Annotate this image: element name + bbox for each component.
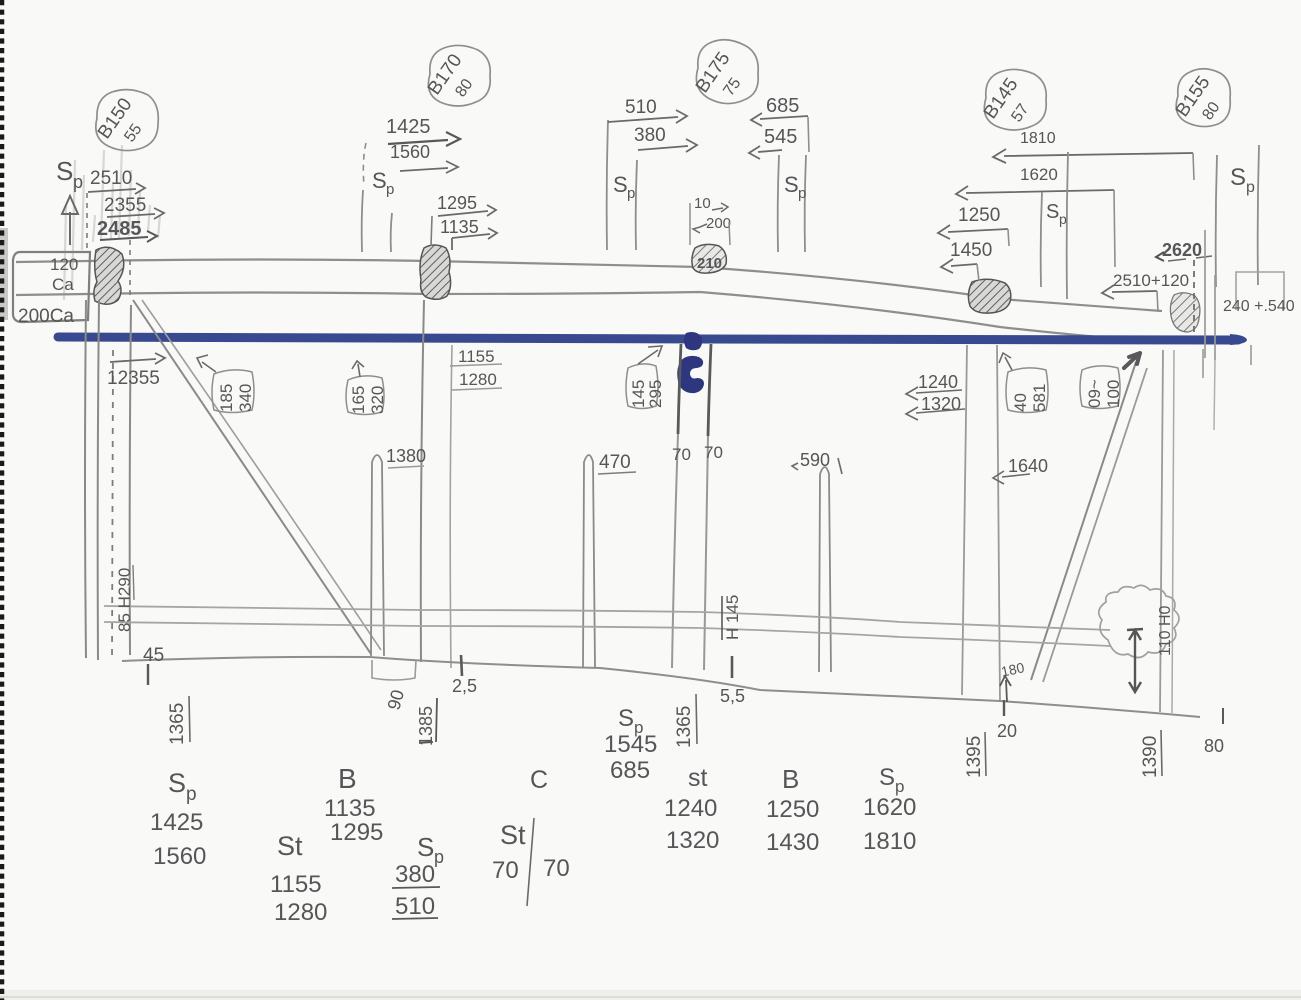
svg-text:2510: 2510 xyxy=(90,168,132,189)
svg-text:1385: 1385 xyxy=(416,706,436,746)
svg-text:1425: 1425 xyxy=(386,116,431,138)
svg-text:H 145: H 145 xyxy=(723,595,742,640)
svg-text:545: 545 xyxy=(764,126,797,148)
svg-text:100: 100 xyxy=(1104,380,1123,408)
svg-text:2620: 2620 xyxy=(1162,240,1202,260)
svg-text:1250: 1250 xyxy=(958,205,1000,226)
svg-text:70: 70 xyxy=(543,855,570,882)
svg-text:70: 70 xyxy=(704,443,723,462)
svg-text:5,5: 5,5 xyxy=(720,686,745,706)
svg-text:St: St xyxy=(277,831,303,861)
svg-text:240 +.540: 240 +.540 xyxy=(1223,298,1295,315)
svg-text:C: C xyxy=(530,766,548,794)
svg-text:1155: 1155 xyxy=(458,347,495,366)
svg-text:2510+120: 2510+120 xyxy=(1113,271,1189,290)
svg-text:2,5: 2,5 xyxy=(452,676,477,696)
svg-text:470: 470 xyxy=(599,452,631,473)
svg-text:S: S xyxy=(168,768,186,798)
svg-text:1250: 1250 xyxy=(766,796,819,823)
svg-text:210: 210 xyxy=(697,255,722,272)
svg-text:S: S xyxy=(372,168,387,193)
svg-text:581: 581 xyxy=(1030,384,1049,412)
svg-text:p: p xyxy=(1059,211,1067,227)
svg-text:12355: 12355 xyxy=(107,368,160,389)
svg-text:1620: 1620 xyxy=(1020,165,1058,184)
svg-text:1380: 1380 xyxy=(386,446,426,466)
svg-text:10: 10 xyxy=(694,195,711,212)
svg-text:510: 510 xyxy=(625,97,657,118)
svg-text:1365: 1365 xyxy=(167,703,188,745)
svg-text:p: p xyxy=(798,185,806,202)
svg-text:p: p xyxy=(386,181,394,198)
svg-text:20: 20 xyxy=(997,721,1017,741)
svg-text:1450: 1450 xyxy=(950,240,992,261)
svg-text:295: 295 xyxy=(646,380,665,408)
svg-text:1365: 1365 xyxy=(674,706,695,748)
svg-text:S: S xyxy=(417,832,434,862)
svg-text:1320: 1320 xyxy=(666,827,719,854)
svg-text:st: st xyxy=(688,764,708,792)
svg-text:B: B xyxy=(782,764,799,794)
svg-text:380: 380 xyxy=(634,125,666,146)
svg-text:1810: 1810 xyxy=(1020,130,1056,147)
svg-text:S: S xyxy=(879,764,895,791)
svg-text:1620: 1620 xyxy=(863,794,916,821)
svg-text:1240: 1240 xyxy=(664,795,717,822)
svg-text:510: 510 xyxy=(395,893,435,920)
svg-text:Ca: Ca xyxy=(52,275,74,294)
svg-text:1295: 1295 xyxy=(437,193,477,213)
svg-text:85 H290: 85 H290 xyxy=(115,568,134,632)
svg-text:1430: 1430 xyxy=(766,829,819,856)
svg-text:1135: 1135 xyxy=(324,795,376,822)
svg-text:120: 120 xyxy=(50,255,78,274)
svg-text:685: 685 xyxy=(766,95,799,117)
svg-text:S: S xyxy=(56,156,73,186)
svg-text:70: 70 xyxy=(492,857,519,884)
svg-text:S: S xyxy=(618,705,634,732)
svg-text:45: 45 xyxy=(143,645,164,666)
svg-text:1295: 1295 xyxy=(330,819,383,846)
svg-text:165: 165 xyxy=(349,386,368,414)
svg-text:1545: 1545 xyxy=(604,731,657,758)
svg-text:320: 320 xyxy=(368,386,387,414)
svg-text:1280: 1280 xyxy=(459,370,497,389)
svg-text:09~: 09~ xyxy=(1085,379,1104,408)
svg-text:1240: 1240 xyxy=(918,372,958,392)
svg-text:1560: 1560 xyxy=(390,142,430,162)
svg-text:200Ca: 200Ca xyxy=(18,306,74,327)
svg-text:S: S xyxy=(613,172,628,197)
svg-text:p: p xyxy=(434,847,444,867)
svg-text:685: 685 xyxy=(610,757,650,784)
svg-text:B: B xyxy=(338,763,357,794)
svg-text:St: St xyxy=(500,820,526,850)
svg-text:1810: 1810 xyxy=(863,828,916,855)
svg-text:200: 200 xyxy=(706,215,731,232)
svg-text:380: 380 xyxy=(395,861,435,888)
svg-text:S: S xyxy=(1230,164,1246,191)
svg-text:590: 590 xyxy=(800,450,830,470)
svg-text:1280: 1280 xyxy=(274,899,327,926)
svg-text:1135: 1135 xyxy=(440,217,479,237)
svg-text:p: p xyxy=(73,172,83,192)
svg-text:110 H0: 110 H0 xyxy=(1157,605,1174,656)
svg-text:p: p xyxy=(186,784,197,805)
svg-text:p: p xyxy=(1246,179,1255,196)
svg-text:1425: 1425 xyxy=(150,809,203,836)
svg-text:S: S xyxy=(1046,201,1059,223)
svg-text:1560: 1560 xyxy=(153,843,206,870)
svg-text:S: S xyxy=(784,172,799,197)
svg-text:340: 340 xyxy=(236,384,255,412)
svg-text:2355: 2355 xyxy=(104,195,146,216)
svg-text:80: 80 xyxy=(1204,736,1224,756)
svg-text:70: 70 xyxy=(672,445,691,464)
svg-text:2485: 2485 xyxy=(97,218,142,240)
svg-text:1155: 1155 xyxy=(270,871,322,898)
svg-text:185: 185 xyxy=(217,384,236,412)
svg-text:1395: 1395 xyxy=(964,736,985,778)
svg-text:1640: 1640 xyxy=(1008,456,1048,476)
svg-text:1390: 1390 xyxy=(1140,736,1161,778)
svg-text:p: p xyxy=(627,185,635,202)
svg-text:40: 40 xyxy=(1011,393,1030,412)
